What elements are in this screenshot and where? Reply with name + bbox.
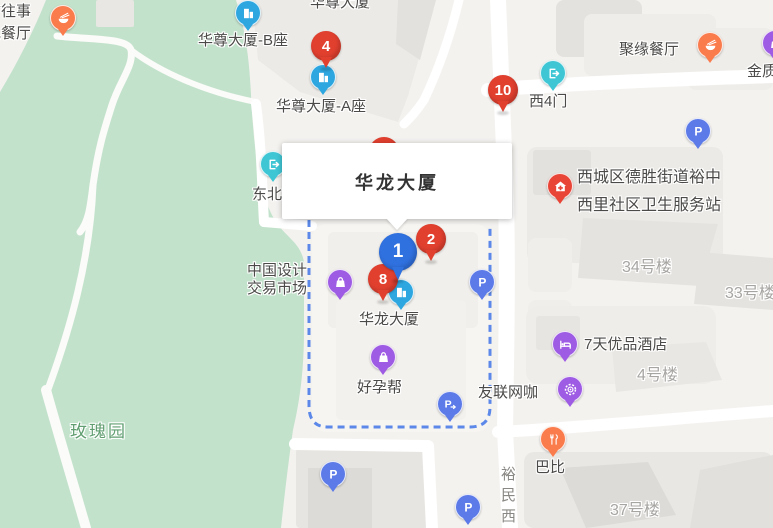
marker-shadow — [497, 111, 509, 115]
map-label-building-33: 33号楼 — [725, 284, 773, 303]
map-label-health-service-station[interactable]: 西城区德胜街道裕中西里社区卫生服务站 — [577, 164, 721, 220]
marker-tail — [328, 485, 338, 492]
parking-arrow-icon: P — [442, 396, 458, 412]
marker-tail — [318, 88, 328, 95]
map-label-hualong-building[interactable]: 华龙大厦 — [359, 310, 419, 329]
marker-2[interactable]: 2 — [416, 224, 446, 264]
info-popup[interactable]: 华龙大厦 — [282, 143, 512, 219]
poi-marker-juyuan-restaurant[interactable] — [697, 32, 723, 63]
marker-tail — [693, 142, 703, 149]
map-label-youlian-netcafe[interactable]: 友联网咖 — [478, 383, 538, 402]
popup-pointer — [386, 218, 408, 230]
parking-icon: P — [474, 274, 490, 290]
marker-shadow — [320, 67, 332, 71]
exit-gate-icon — [266, 157, 281, 172]
poi-marker-west-gate-4[interactable] — [540, 60, 566, 91]
poi-marker-china-design-market[interactable] — [327, 269, 353, 300]
poi-marker-babi[interactable] — [540, 426, 566, 457]
food-bowl-icon — [703, 38, 718, 53]
parking-icon: P — [325, 466, 341, 482]
svg-text:P: P — [694, 125, 702, 139]
svg-text:P: P — [478, 276, 486, 290]
shopping-bag-icon — [768, 36, 773, 51]
map-label-huazun-tower-b[interactable]: 华尊大厦-B座 — [198, 31, 288, 50]
map-label-7days-hotel[interactable]: 7天优品酒店 — [584, 335, 667, 354]
map-label-rose-garden: 玫瑰园 — [70, 422, 127, 441]
marker-tail — [548, 84, 558, 91]
poi-marker-haoyunbang[interactable] — [370, 344, 396, 375]
marker-tail — [705, 56, 715, 63]
map-label-huazun-tower[interactable]: 华尊大厦 — [310, 0, 370, 12]
poi-marker-health-station[interactable] — [547, 173, 573, 204]
parking-marker-parking-2[interactable]: P — [469, 269, 495, 300]
hotel-bed-icon — [558, 337, 573, 352]
map-label-juyuan-restaurant[interactable]: 聚缘餐厅 — [619, 40, 679, 59]
map-label-babi[interactable]: 巴比 — [535, 458, 565, 477]
parking-icon: P — [460, 499, 476, 515]
marker-tail — [463, 518, 473, 525]
marker-tail — [548, 450, 558, 457]
map-label-yumin-west-road: 裕民西 — [498, 466, 517, 528]
marker-tail — [477, 293, 487, 300]
poi-marker-huazun-b[interactable] — [235, 0, 261, 31]
poi-marker-guwangshi-restaurant[interactable] — [50, 5, 76, 36]
exit-gate-icon — [546, 66, 561, 81]
svg-text:P: P — [445, 399, 452, 411]
marker-tail — [555, 197, 565, 204]
map-label-building-4: 4号楼 — [637, 366, 678, 385]
map-label-jinzhi[interactable]: 金质 — [747, 62, 773, 81]
marker-10[interactable]: 10 — [488, 75, 518, 115]
marker-shadow — [425, 260, 437, 264]
marker-1[interactable]: 1 — [379, 233, 417, 283]
map-label-guwangshi-restaurant[interactable]: 古往事色餐厅 — [0, 1, 31, 45]
marker-4[interactable]: 4 — [311, 31, 341, 71]
parking-icon: P — [690, 123, 706, 139]
marker-shadow — [392, 279, 404, 283]
svg-text:P: P — [464, 501, 472, 515]
marker-tail — [560, 355, 570, 362]
map-label-building-37: 37号楼 — [610, 501, 660, 520]
marker-tail — [378, 368, 388, 375]
poi-marker-youlian-netcafe[interactable] — [557, 376, 583, 407]
marker-number: 1 — [379, 233, 417, 271]
poi-marker-7days-hotel[interactable] — [552, 331, 578, 362]
building-icon — [241, 6, 256, 21]
building-icon — [316, 70, 331, 85]
parking-marker-parking-3[interactable]: P — [320, 461, 346, 492]
parking-marker-parking-4[interactable]: P — [455, 494, 481, 525]
parking-marker-parking-1[interactable]: P — [685, 118, 711, 149]
marker-tail — [445, 415, 455, 422]
clinic-house-icon — [553, 179, 568, 194]
map-label-haoyunbang[interactable]: 好孕帮 — [357, 378, 402, 397]
internet-cafe-icon — [563, 382, 578, 397]
shopping-bag-icon — [376, 350, 391, 365]
map-label-west-gate-4[interactable]: 西4门 — [529, 92, 567, 111]
svg-text:P: P — [329, 468, 337, 482]
popup-title: 华龙大厦 — [282, 143, 512, 195]
shopping-bag-icon — [333, 275, 348, 290]
poi-marker-jinzhi[interactable] — [762, 30, 773, 61]
marker-tail — [335, 293, 345, 300]
parking-marker-parking-entrance[interactable]: P — [437, 391, 463, 422]
map-viewport[interactable]: 古往事色餐厅华尊大厦华尊大厦-B座华尊大厦-A座聚缘餐厅金质西4门东北门西城区德… — [0, 0, 773, 528]
marker-tail — [268, 175, 278, 182]
marker-tail — [58, 29, 68, 36]
restaurant-fork-icon — [546, 432, 561, 447]
map-label-china-design-market[interactable]: 中国设计交易市场 — [247, 262, 307, 298]
map-label-huazun-tower-a[interactable]: 华尊大厦-A座 — [276, 97, 366, 116]
marker-tail — [243, 24, 253, 31]
map-label-building-34: 34号楼 — [622, 258, 672, 277]
marker-tail — [396, 303, 406, 310]
food-bowl-icon — [56, 11, 71, 26]
marker-shadow — [377, 300, 389, 304]
marker-tail — [565, 400, 575, 407]
